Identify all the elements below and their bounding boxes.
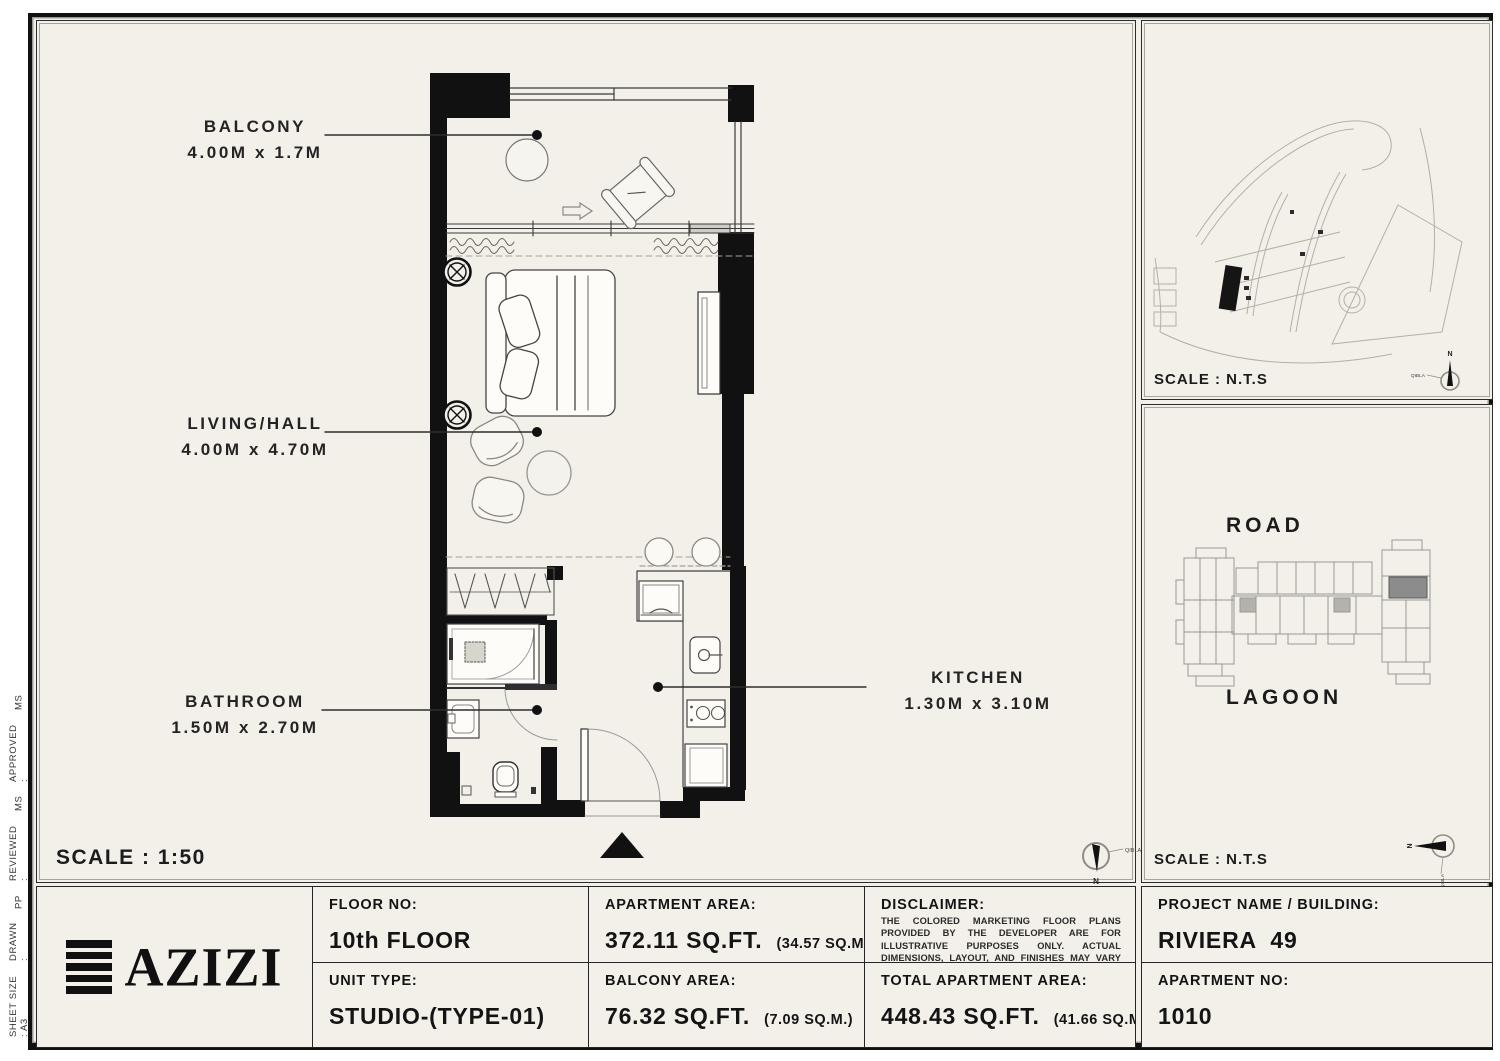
- compass-main: N QIBLA: [1083, 843, 1142, 886]
- key-plan-drawing: N QIBLA: [1176, 540, 1454, 888]
- washer: [685, 744, 727, 787]
- unit-type-value: STUDIO-(TYPE-01): [329, 1003, 574, 1030]
- floor-no-label: FLOOR NO:: [329, 897, 574, 913]
- balcony-table: [506, 139, 548, 181]
- apartment-no-cell: APARTMENT NO: 1010: [1142, 963, 1492, 1047]
- plan-scale: SCALE : 1:50: [56, 846, 206, 870]
- value-metric: (41.66 SQ.M.): [1054, 1012, 1135, 1028]
- room-dims: 1.50M x 2.70M: [140, 715, 350, 741]
- project-name-label: PROJECT NAME / BUILDING:: [1158, 897, 1478, 913]
- approved-label: APPROVED :: [8, 724, 30, 782]
- kitchen-label: KITCHEN 1.30M x 3.10M: [868, 665, 1088, 716]
- title-block-table: AZIZI FLOOR NO: 10th FLOOR APARTMENT ARE…: [36, 886, 1136, 1048]
- leader-lines: [322, 130, 866, 715]
- drawn-value: PP: [14, 895, 25, 909]
- room-name: KITCHEN: [868, 665, 1088, 691]
- room-dims: 1.30M x 3.10M: [868, 691, 1088, 717]
- unit-type-cell: UNIT TYPE: STUDIO-(TYPE-01): [313, 963, 589, 1047]
- drawn-label: DRAWN :: [8, 923, 30, 962]
- value-imperial: 372.11 SQ.FT.: [605, 927, 762, 953]
- value-imperial: 448.43 SQ.FT.: [881, 1003, 1040, 1029]
- key-plan-unit-highlight: [1389, 577, 1427, 598]
- disclaimer-text: THE COLORED MARKETING FLOOR PLANS PROVID…: [881, 915, 1121, 963]
- value-metric: (7.09 SQ.M.): [764, 1012, 853, 1028]
- bathroom-label: BATHROOM 1.50M x 2.70M: [140, 689, 350, 740]
- approved-value: MS: [14, 695, 25, 710]
- living-label: LIVING/HALL 4.00M x 4.70M: [150, 411, 360, 462]
- project-name-value: RIVIERA 49: [1158, 927, 1478, 954]
- apartment-area-cell: APARTMENT AREA: 372.11 SQ.FT.(34.57 SQ.M…: [589, 887, 865, 963]
- site-map-scale: SCALE : N.T.S: [1154, 371, 1268, 388]
- room-name: BATHROOM: [140, 689, 350, 715]
- door-swing-arrow: [563, 203, 592, 219]
- compass-n-label: N: [1407, 843, 1414, 848]
- compass-site-map: N QIBLA: [1411, 351, 1459, 390]
- site-highlight-building: [1219, 265, 1243, 311]
- balcony-chair: [600, 155, 677, 230]
- balcony-area-label: BALCONY AREA:: [605, 973, 850, 989]
- stools: [645, 538, 720, 566]
- project-info-table: PROJECT NAME / BUILDING: RIVIERA 49 APAR…: [1141, 886, 1493, 1048]
- room-name: LIVING/HALL: [150, 411, 360, 437]
- sheet-size: SHEET SIZE : A3: [8, 975, 30, 1037]
- lagoon-label: LAGOON: [1226, 686, 1406, 710]
- sheet-margin-info: SHEET SIZE : A3 DRAWN : PP REVIEWED : MS…: [8, 688, 30, 1044]
- bed: [486, 270, 615, 416]
- key-plan-scale: SCALE : N.T.S: [1154, 851, 1268, 868]
- balcony-area-value: 76.32 SQ.FT.(7.09 SQ.M.): [605, 1003, 850, 1030]
- logo-cell: AZIZI: [37, 887, 313, 1047]
- compass-qibla-label: QIBLA: [1411, 373, 1426, 379]
- lounge-chairs: [465, 411, 571, 526]
- azizi-logo-text: AZIZI: [124, 935, 282, 998]
- room-dims: 4.00M x 1.7M: [150, 140, 360, 166]
- azizi-logo-icon: [66, 940, 112, 994]
- apartment-no-value: 1010: [1158, 1003, 1478, 1030]
- total-area-value: 448.43 SQ.FT.(41.66 SQ.M.): [881, 1003, 1121, 1030]
- sliding-door: [446, 221, 754, 236]
- balcony-label: BALCONY 4.00M x 1.7M: [150, 114, 360, 165]
- balcony-area-cell: BALCONY AREA: 76.32 SQ.FT.(7.09 SQ.M.): [589, 963, 865, 1047]
- fridge: [639, 581, 683, 621]
- drawing-sheet: SHEET SIZE : A3 DRAWN : PP REVIEWED : MS…: [0, 0, 1500, 1061]
- toilet: [462, 762, 536, 797]
- compass-n-label: N: [1447, 351, 1452, 358]
- bathroom-sink: [447, 700, 479, 738]
- total-area-label: TOTAL APARTMENT AREA:: [881, 973, 1121, 989]
- entrance-door: [581, 729, 660, 858]
- shower: [447, 624, 539, 684]
- reviewed-value: MS: [14, 796, 25, 811]
- room-name: BALCONY: [150, 114, 360, 140]
- road-label: ROAD: [1226, 514, 1406, 538]
- floor-plan-drawing: N QIBLA: [322, 73, 1142, 886]
- room-dims: 4.00M x 4.70M: [150, 437, 360, 463]
- key-plan-core: [1240, 598, 1256, 612]
- floor-no-value: 10th FLOOR: [329, 927, 574, 954]
- kitchen-sink: [690, 637, 722, 673]
- compass-n-label: N: [1093, 877, 1099, 886]
- unit-type-label: UNIT TYPE:: [329, 973, 574, 989]
- disclaimer-label: DISCLAIMER:: [881, 897, 1121, 913]
- compass-qibla-label: QIBLA: [1125, 848, 1142, 854]
- floor-no-cell: FLOOR NO: 10th FLOOR: [313, 887, 589, 963]
- site-map-drawing: N QIBLA: [1154, 121, 1462, 390]
- tv-unit: [698, 292, 720, 394]
- total-area-cell: TOTAL APARTMENT AREA: 448.43 SQ.FT.(41.6…: [865, 963, 1135, 1047]
- project-name-cell: PROJECT NAME / BUILDING: RIVIERA 49: [1142, 887, 1492, 963]
- curtain-symbols: [450, 239, 718, 254]
- wardrobe: [447, 568, 554, 615]
- compass-key-plan: N QIBLA: [1407, 835, 1454, 888]
- apartment-area-value: 372.11 SQ.FT.(34.57 SQ.M.): [605, 927, 850, 954]
- apartment-no-label: APARTMENT NO:: [1158, 973, 1478, 989]
- reviewed-label: REVIEWED :: [8, 826, 30, 881]
- key-plan-core: [1334, 598, 1350, 612]
- column-symbols: [444, 259, 471, 429]
- disclaimer-cell: DISCLAIMER: THE COLORED MARKETING FLOOR …: [865, 887, 1135, 963]
- apartment-area-label: APARTMENT AREA:: [605, 897, 850, 913]
- value-metric: (34.57 SQ.M.): [776, 936, 865, 952]
- value-imperial: 76.32 SQ.FT.: [605, 1003, 750, 1029]
- stove: [687, 700, 725, 727]
